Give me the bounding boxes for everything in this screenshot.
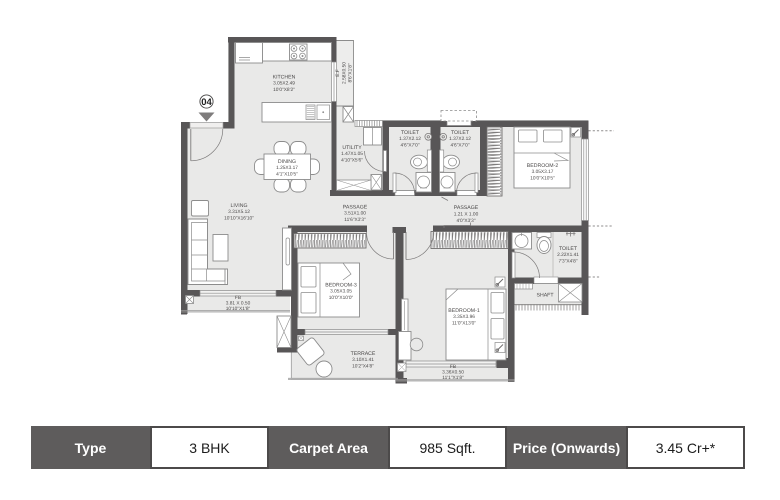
svg-text:TOILET1.37X2.124'6"X7'0": TOILET1.37X2.124'6"X7'0" xyxy=(399,130,421,148)
svg-text:UTILITY1.47X1.054'10"X5'6": UTILITY1.47X1.054'10"X5'6" xyxy=(341,145,363,163)
svg-text:KITCHEN3.05X2.4910'0"X8'2": KITCHEN3.05X2.4910'0"X8'2" xyxy=(273,75,296,93)
svg-text:SHAFT: SHAFT xyxy=(536,293,554,299)
svg-text:PASSAGE3.51X1.0011'6"X3'3": PASSAGE3.51X1.0011'6"X3'3" xyxy=(343,205,368,223)
svg-text:DINING1.25X3.174'1"X10'5": DINING1.25X3.174'1"X10'5" xyxy=(276,159,298,177)
svg-text:PASSAGE1.21 X 1.004'0"X3'3": PASSAGE1.21 X 1.004'0"X3'3" xyxy=(454,205,479,224)
svg-text:TERRACE3.10X1.4110'2"X4'8": TERRACE3.10X1.4110'2"X4'8" xyxy=(351,351,376,369)
svg-text:TOILET2.22X1.417'3"X4'8": TOILET2.22X1.417'3"X4'8" xyxy=(557,246,579,264)
svg-text:04: 04 xyxy=(201,97,212,108)
svg-text:TOILET1.37X2.124'6"X7'0": TOILET1.37X2.124'6"X7'0" xyxy=(449,130,471,148)
